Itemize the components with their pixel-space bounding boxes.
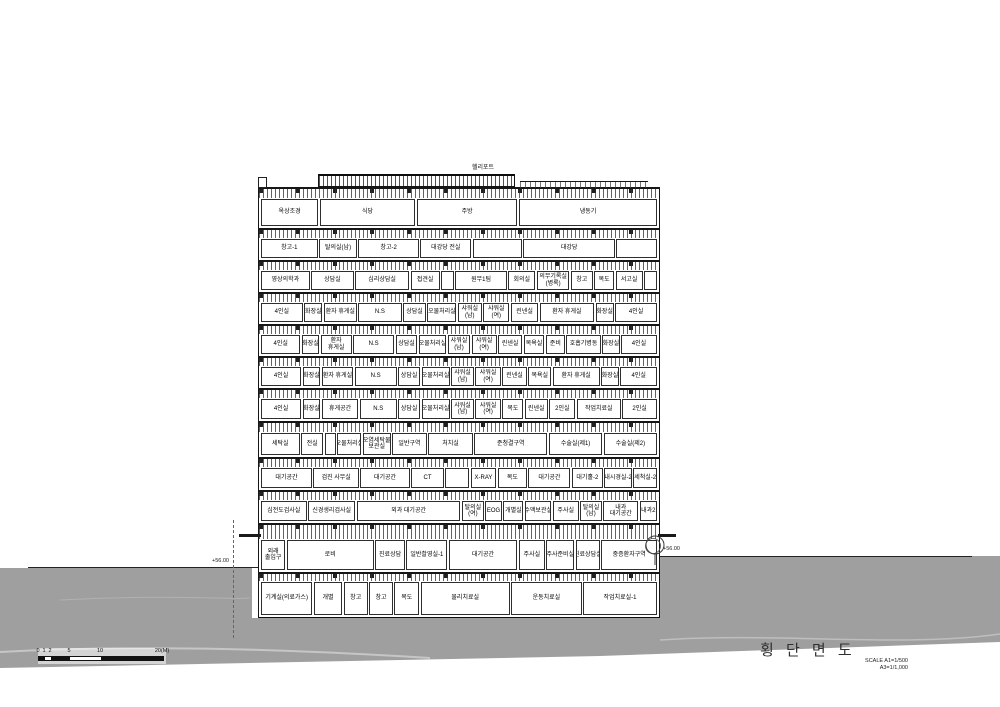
room: 화장실 [303, 399, 321, 419]
room: 창고 [344, 582, 368, 615]
room: 옥상조경 [261, 199, 318, 226]
room: 세척실-2 [633, 468, 657, 488]
room: 목욕실 [528, 367, 551, 386]
room: 심리상담실 [355, 271, 409, 290]
room: 환자 휴게실 [540, 303, 594, 322]
room [616, 239, 657, 258]
room: 운동치료실 [511, 582, 581, 615]
room: 주사실 [553, 501, 579, 521]
room: 처치실 [428, 433, 472, 455]
room [644, 271, 657, 290]
room: 영상의학과 [261, 271, 310, 290]
room: 식당 [320, 199, 416, 226]
room: 회의실 [508, 271, 535, 290]
room: 환자 휴게실 [553, 367, 600, 386]
room: 상담실 [398, 367, 420, 386]
scale-note: SCALE A1=1/500 A3=1/1,000 [790, 658, 908, 671]
room: 주사준비실 [546, 540, 574, 570]
room: 복도 [502, 399, 523, 419]
room: 탈의실(여) [462, 501, 484, 521]
scale-bar-segment [101, 657, 163, 660]
room: 4인실 [261, 367, 301, 386]
floor-rooms: 외래 출입구로비진료상담일반촬영실-1대기공간주사실주사준비실진료상담실중증환자… [259, 539, 659, 572]
room: X-RAY [471, 468, 497, 488]
ceiling-hatch [259, 492, 659, 500]
scale-note-line2: A3=1/1,000 [790, 665, 908, 672]
room: 내과 대기공간 [603, 501, 638, 521]
room: N.S [358, 303, 402, 322]
room: 오물처리실 [419, 335, 447, 354]
room: 기계실(의료가스) [261, 582, 312, 615]
room: N.S [355, 367, 397, 386]
room: 탈의실(남) [580, 501, 602, 521]
room: 4인실 [261, 399, 301, 419]
floor: 외래 출입구로비진료상담일반촬영실-1대기공간주사실주사준비실진료상담실중증환자… [259, 523, 659, 572]
room: 접견실 [411, 271, 440, 290]
floor: 4인실화장실환자 휴게실N.S상담실오물처리실샤워실(남)샤워실(여)린넨실목욕… [259, 324, 659, 356]
room: 린넨실 [498, 335, 522, 354]
room: 2인실 [622, 399, 657, 419]
room: 오물처리실 [422, 399, 450, 419]
entrance-canopy-left [239, 534, 261, 537]
room: 심전도검사실 [261, 501, 307, 521]
room: 물리치료실 [421, 582, 510, 615]
room: 작업치료실-1 [583, 582, 657, 615]
room: 4인실 [621, 335, 657, 354]
tree-icon [640, 532, 670, 570]
room: 전실 [301, 433, 323, 455]
floor-rooms: 기계실(의료가스)개별창고창고복도물리치료실운동치료실작업치료실-1 [259, 581, 659, 617]
room: 탈의실(남) [319, 239, 357, 258]
room: 상담실 [311, 271, 353, 290]
room: 샤워실(여) [475, 399, 500, 419]
room: 2인실 [549, 399, 575, 419]
room: 오물처리실 [422, 367, 450, 386]
ceiling-hatch [259, 423, 659, 432]
floor: 대기공간검진 사무실대기공간CTX-RAY복도대기공간대기홀-2내시경실-2세척… [259, 457, 659, 490]
room: 샤워실(남) [448, 335, 470, 354]
room: 샤워실(여) [472, 335, 497, 354]
floor-rooms: 세탁실전실오물처리실오염세탁물 보관실일반구역처치실준청결구역수술실(제1)수술… [259, 432, 659, 457]
room: 내시경실-2 [604, 468, 631, 488]
ground-line-left [28, 567, 258, 568]
scale-bar-ticks: 01251020(M) [38, 648, 162, 655]
room: 화장실 [304, 303, 322, 322]
room: 린넨실 [502, 367, 527, 386]
ceiling-hatch [259, 390, 659, 398]
room: 개별 [314, 582, 343, 615]
room: 린넨실 [525, 399, 548, 419]
floor-rooms: 4인실화장실환자 휴게실N.S상담실오물처리실샤워실(남)샤워실(여)린넨실목욕… [259, 334, 659, 356]
floor-rooms: 4인실화장실휴게공간N.S상담실오물처리실샤워실(남)샤워실(여)복도린넨실2인… [259, 398, 659, 421]
room: 복도 [498, 468, 527, 488]
room: 대강당 전실 [420, 239, 471, 258]
scale-bar-segment [51, 657, 70, 660]
room: 냉동기 [519, 199, 657, 226]
ceiling-hatch [259, 189, 659, 198]
room: 준비 [546, 335, 565, 354]
floor-rooms: 4인실화장실환자 휴게실N.S상담실오물처리실샤워실(남)샤워실(여)린넨실환자… [259, 302, 659, 324]
floor: 기계실(의료가스)개별창고창고복도물리치료실운동치료실작업치료실-1 [259, 572, 659, 617]
room: 원무1팀 [455, 271, 506, 290]
ceiling-hatch [259, 294, 659, 302]
floor: 4인실화장실휴게공간N.S상담실오물처리실샤워실(남)샤워실(여)복도린넨실2인… [259, 388, 659, 421]
room: 4인실 [620, 367, 657, 386]
room: 개별실 [503, 501, 523, 521]
ceiling-hatch [259, 358, 659, 366]
room: 화장실 [601, 367, 619, 386]
ceiling-hatch [259, 459, 659, 467]
room: 화장실 [596, 303, 614, 322]
scale-bar-segment [70, 657, 101, 660]
room: 창고 [369, 582, 393, 615]
floor-rooms: 4인실화장실환자 휴게실N.S상담실오물처리실샤워실(남)샤워실(여)린넨실목욕… [259, 366, 659, 388]
helipad-deck [318, 174, 515, 187]
room: 환자 휴게실 [321, 335, 352, 354]
room: 수술실(제2) [604, 433, 657, 455]
room: 호흡기병동 [566, 335, 600, 354]
room: 복도 [394, 582, 419, 615]
ceiling-hatch [259, 574, 659, 581]
floor: 심전도검사실신경생리검사실외과 대기공간탈의실(여)EOG개별실수액보관실주사실… [259, 490, 659, 523]
room: 창고-1 [261, 239, 318, 258]
room: 서고실 [616, 271, 643, 290]
room: 오염세탁물 보관실 [363, 433, 391, 455]
ceiling-hatch [259, 262, 659, 270]
room: 4인실 [261, 335, 300, 354]
room: 환자 휴게실 [322, 367, 353, 386]
room: 진료상담실 [576, 540, 600, 570]
floor: 4인실화장실환자 휴게실N.S상담실오물처리실샤워실(남)샤워실(여)린넨실목욕… [259, 356, 659, 388]
room: 의무기록실(병록) [537, 271, 570, 290]
room: 목욕실 [524, 335, 545, 354]
scale-bar: 01251020(M) [38, 648, 166, 664]
room: 대기공간 [261, 468, 312, 488]
room: 진료상담 [375, 540, 405, 570]
room: N.S [353, 335, 394, 354]
room: 신경생리검사실 [308, 501, 355, 521]
room: 화장실 [302, 335, 319, 354]
floor-rooms: 심전도검사실신경생리검사실외과 대기공간탈의실(여)EOG개별실수액보관실주사실… [259, 500, 659, 523]
room: 준청결구역 [474, 433, 547, 455]
roof-equipment-strip [520, 181, 648, 188]
floor: 4인실화장실환자 휴게실N.S상담실오물처리실샤워실(남)샤워실(여)린넨실환자… [259, 292, 659, 324]
room: 검진 사무실 [313, 468, 359, 488]
scale-note-line1: SCALE A1=1/500 [790, 658, 908, 665]
room: 대기공간 [449, 540, 518, 570]
level-marker-left: +56.00 [212, 558, 229, 564]
floor: 옥상조경식당주방냉동기 [259, 187, 659, 228]
scale-tick-label: 20(M) [155, 648, 169, 654]
room: 상담실 [398, 399, 420, 419]
room: 4인실 [615, 303, 657, 322]
room: 주사실 [519, 540, 545, 570]
room: 일반촬영실-1 [406, 540, 447, 570]
room: CT [411, 468, 444, 488]
room: 4인실 [261, 303, 303, 322]
room: 창고 [571, 271, 593, 290]
room: 휴게공간 [322, 399, 359, 419]
helipad-label: 헬리포트 [472, 162, 494, 171]
ceiling-hatch [259, 230, 659, 238]
room: 샤워실(남) [451, 399, 474, 419]
room: 대기홀-2 [572, 468, 603, 488]
room [473, 239, 522, 258]
room: 창고-2 [358, 239, 418, 258]
scale-tick-label: 0 [36, 648, 39, 654]
room: 샤워실(여) [483, 303, 509, 322]
drawing-title: 횡 단 면 도 [760, 639, 855, 660]
room: 화장실 [303, 367, 321, 386]
room: 내과2 [640, 501, 657, 521]
room [325, 433, 336, 455]
room: 세탁실 [261, 433, 300, 455]
room: 작업치료실 [577, 399, 621, 419]
drawing-canvas: 헬리포트 옥상조경식당주방냉동기창고-1탈의실(남)창고-2대강당 전실대강당영… [0, 0, 1000, 707]
room: 린넨실 [511, 303, 538, 322]
room: 대기공간 [360, 468, 409, 488]
room: 외래 출입구 [261, 540, 285, 570]
floor-rooms: 옥상조경식당주방냉동기 [259, 198, 659, 228]
room: 수술실(제1) [549, 433, 602, 455]
floor: 영상의학과상담실심리상담실접견실원무1팀회의실의무기록실(병록)창고복도서고실 [259, 260, 659, 292]
room [441, 271, 454, 290]
ceiling-hatch [259, 525, 659, 539]
floor: 창고-1탈의실(남)창고-2대강당 전실대강당 [259, 228, 659, 260]
roof-stair-bulkhead [258, 177, 267, 188]
scale-tick-label: 10 [97, 648, 103, 654]
ceiling-hatch [259, 326, 659, 334]
room: 샤워실(여) [475, 367, 500, 386]
scale-tick-label: 2 [48, 648, 51, 654]
room: 주방 [417, 199, 518, 226]
boundary-dash-line [233, 520, 234, 638]
room [445, 468, 469, 488]
scale-tick-label: 5 [67, 648, 70, 654]
floor: 세탁실전실오물처리실오염세탁물 보관실일반구역처치실준청결구역수술실(제1)수술… [259, 421, 659, 457]
room: 대기공간 [528, 468, 570, 488]
room: EOG [485, 501, 502, 521]
room: 상담실 [396, 335, 418, 354]
building-section: 옥상조경식당주방냉동기창고-1탈의실(남)창고-2대강당 전실대강당영상의학과상… [258, 187, 660, 618]
room: 오물처리실 [337, 433, 361, 455]
room: 오물처리실 [427, 303, 456, 322]
room: 대강당 [523, 239, 614, 258]
room: 외과 대기공간 [357, 501, 461, 521]
room: N.S [360, 399, 397, 419]
floor-rooms: 창고-1탈의실(남)창고-2대강당 전실대강당 [259, 238, 659, 260]
scale-tick-label: 1 [42, 648, 45, 654]
room: 복도 [594, 271, 614, 290]
room: 화장실 [602, 335, 619, 354]
room: 상담실 [403, 303, 426, 322]
floor-rooms: 대기공간검진 사무실대기공간CTX-RAY복도대기공간대기홀-2내시경실-2세척… [259, 467, 659, 490]
room: 샤워실(남) [458, 303, 482, 322]
scale-bar-bar [38, 656, 164, 661]
room: 일반구역 [392, 433, 427, 455]
room: 환자 휴게실 [324, 303, 357, 322]
ground-line-right [660, 556, 972, 557]
room: 샤워실(남) [451, 367, 474, 386]
room: 수액보관실 [525, 501, 551, 521]
floor-rooms: 영상의학과상담실심리상담실접견실원무1팀회의실의무기록실(병록)창고복도서고실 [259, 270, 659, 292]
room: 로비 [287, 540, 374, 570]
